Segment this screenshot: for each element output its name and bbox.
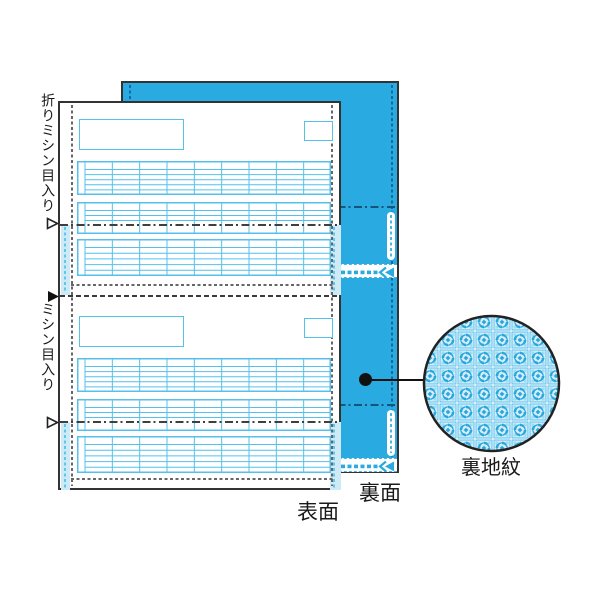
pattern-magnifier-circle [421, 313, 562, 454]
fold-arrow-icon-1 [46, 217, 59, 230]
product-illustration: 折りミシン目入り ミシン目入り 表面 裏面 [0, 0, 600, 600]
form-section-1 [60, 103, 339, 300]
address-box [79, 119, 184, 150]
code-box [304, 318, 333, 338]
back-glue-strip-2 [387, 410, 395, 456]
front-side-label: 表面 [296, 496, 340, 526]
callout-line [366, 379, 426, 381]
upper-table [77, 358, 331, 392]
address-box [79, 316, 184, 347]
lower-table [77, 239, 331, 276]
middle-table [77, 202, 331, 234]
code-box [304, 121, 333, 141]
upper-table [77, 161, 331, 195]
lower-table [77, 436, 331, 473]
front-fold-line-2 [60, 421, 339, 423]
back-side-label: 裏面 [358, 477, 402, 507]
fold-perforation-label: 折りミシン目入り [40, 93, 56, 213]
perforation-label: ミシン目入り [40, 302, 56, 392]
back-glue-strip-1 [387, 212, 395, 260]
form-section-2 [60, 300, 339, 497]
callout-dot [359, 373, 372, 386]
middle-table [77, 399, 331, 431]
front-fold-line-1 [60, 224, 339, 226]
front-sheet [58, 101, 341, 490]
fold-arrow-icon-2 [46, 416, 59, 429]
back-pattern-label: 裏地紋 [458, 451, 524, 480]
